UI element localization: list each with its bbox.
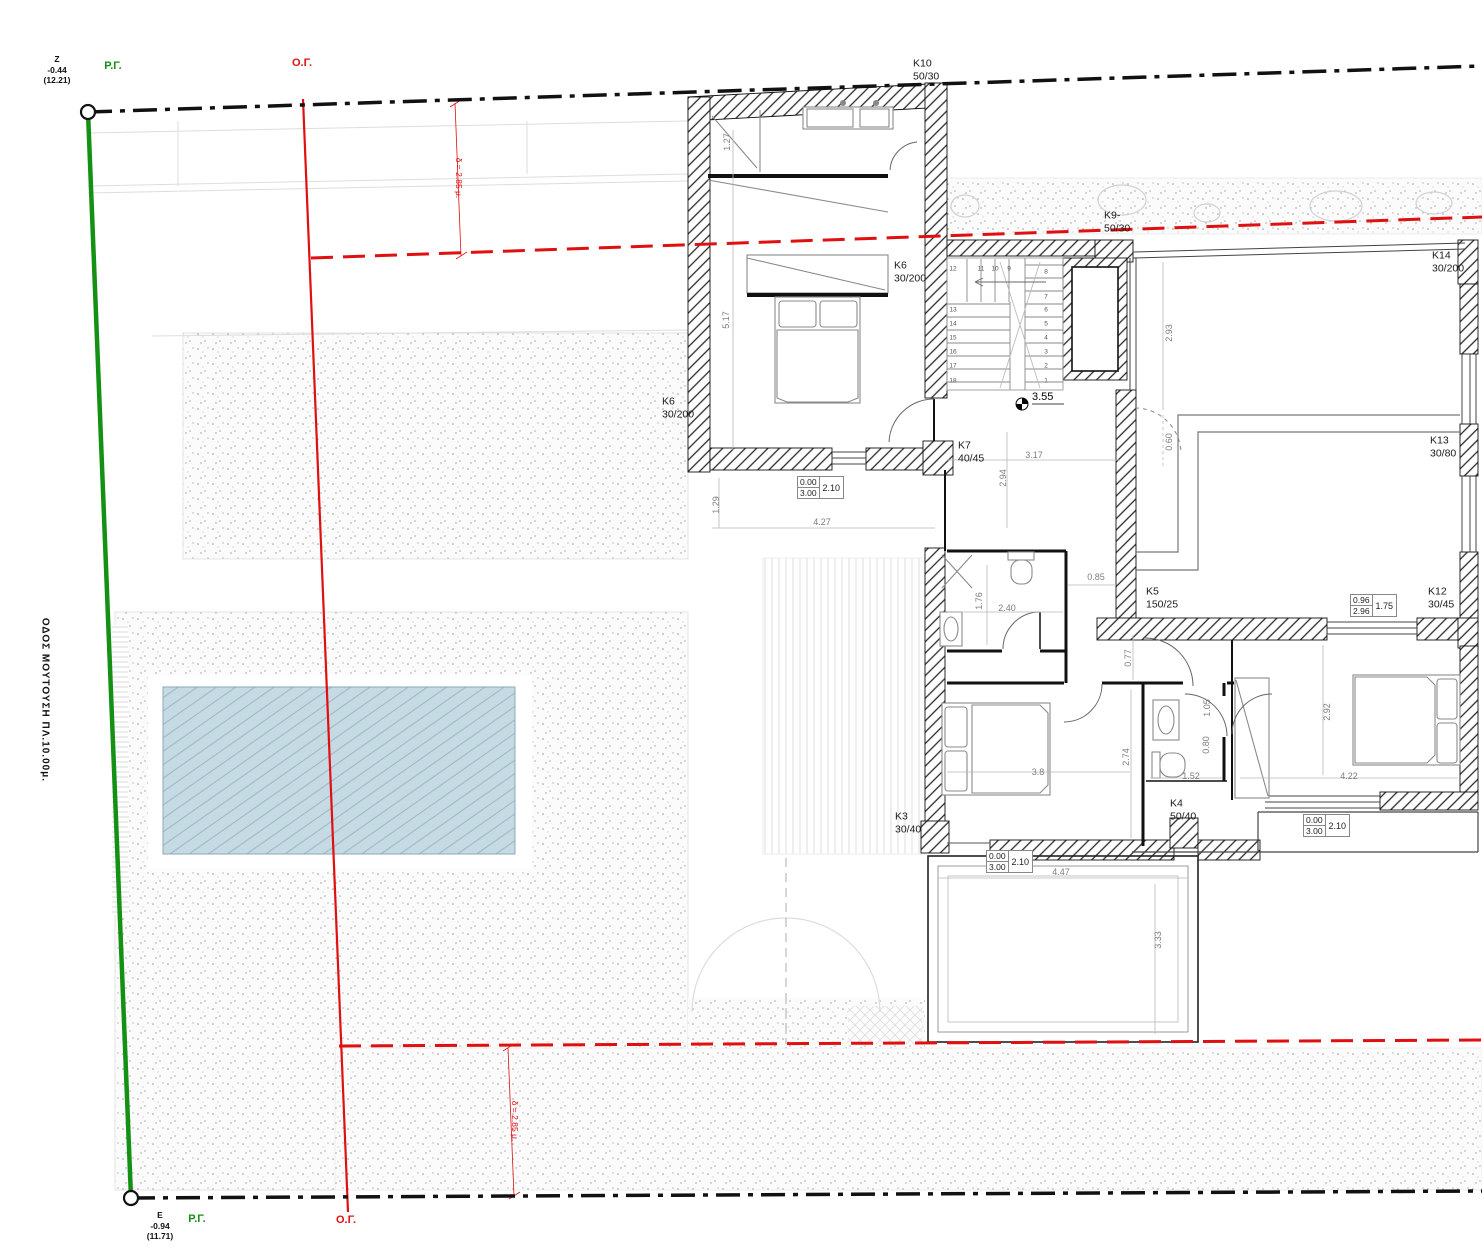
terrain-lines <box>88 121 688 336</box>
bed-2 <box>942 703 1050 795</box>
bed-master <box>775 297 860 403</box>
sink-icon <box>860 109 889 127</box>
striped-deck <box>763 558 925 854</box>
lattice-decoration <box>848 1006 922 1044</box>
dashed-door-swing <box>1135 408 1181 454</box>
bathroom2-fixtures <box>1152 700 1185 778</box>
boundary-point-e <box>124 1191 138 1205</box>
plan-geometry <box>0 0 1482 1249</box>
column-k3 <box>921 821 949 853</box>
stair-walk-arrow <box>975 278 1046 286</box>
column-k13 <box>1460 424 1478 476</box>
column-k7 <box>923 441 953 475</box>
swimming-pool <box>163 687 515 854</box>
column-k4 <box>1170 818 1198 848</box>
bed-3 <box>1353 675 1460 765</box>
sink-icon <box>807 109 853 127</box>
boundary-point-z <box>81 105 95 119</box>
floor-plan-drawing: Z -0.44 (12.21) E -0.94 (11.71) Ρ.Γ. Ο.Γ… <box>0 0 1482 1249</box>
bottom-terrace <box>928 856 1198 1042</box>
level-marker-symbol <box>1016 398 1064 410</box>
toilet-icon <box>1011 560 1032 584</box>
column-k5-wall <box>1097 618 1327 640</box>
column-k14 <box>1458 240 1478 284</box>
column-k12 <box>1458 618 1478 648</box>
elevator-shaft <box>1072 267 1118 371</box>
toilet-icon <box>1160 753 1185 777</box>
upper-setback-line <box>311 217 1482 258</box>
staircase <box>947 258 1063 390</box>
stepped-edge-lines <box>1136 415 1460 570</box>
